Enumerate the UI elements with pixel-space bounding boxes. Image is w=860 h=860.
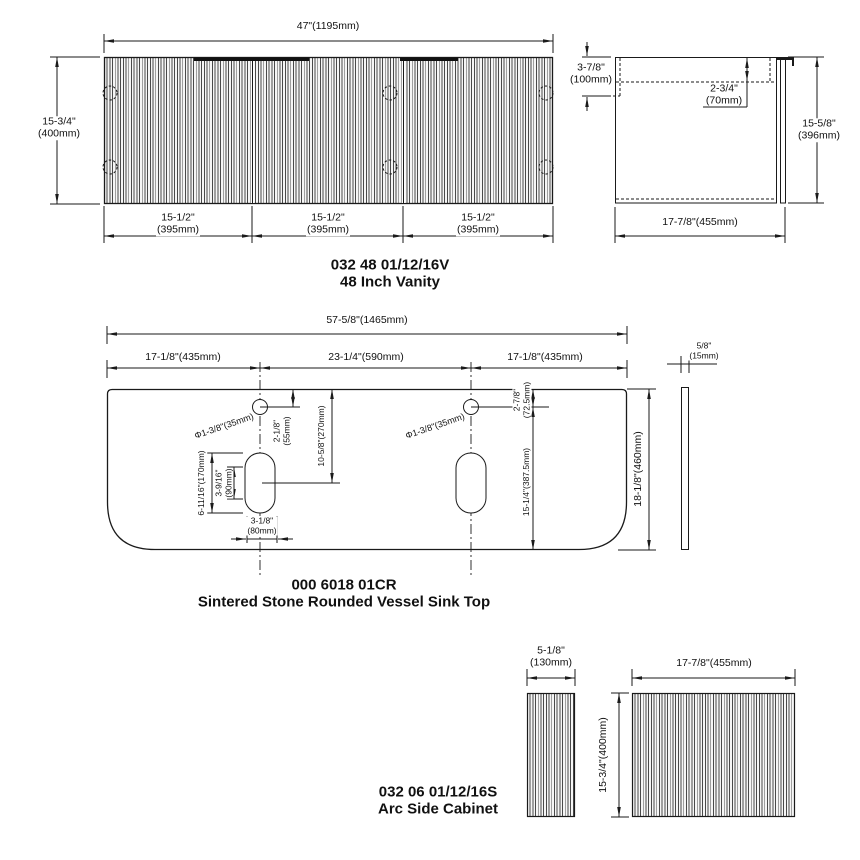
dim-door-3: 15-1/2" (395mm) bbox=[456, 212, 500, 236]
dim-hole-left-offset: 2-1/8" (55mm) bbox=[272, 415, 291, 446]
dim-side-top-height: 3-7/8" (100mm) bbox=[569, 62, 613, 86]
drain-cutout-left bbox=[245, 453, 275, 513]
dim-cabinet-depth: 5-1/8" (130mm) bbox=[529, 645, 573, 669]
sink-top-profile bbox=[682, 388, 689, 550]
dim-side-height: 15-5/8" (396mm) bbox=[797, 118, 841, 142]
sinktop-code: 000 6018 01CR bbox=[291, 577, 396, 594]
dim-top-to-drain: 10-5/8"(270mm) bbox=[317, 404, 327, 467]
drain-cutout-right bbox=[456, 453, 486, 513]
sinktop-name: Sintered Stone Rounded Vessel Sink Top bbox=[198, 594, 490, 611]
dim-cabinet-height: 15-3/4"(400mm) bbox=[598, 716, 610, 794]
vanity-name: 48 Inch Vanity bbox=[340, 274, 440, 291]
dim-faucet-hole-right: Φ1-3/8"(35mm) bbox=[403, 411, 467, 441]
dim-drain-length: 6-11/16"(170mm) bbox=[197, 449, 207, 516]
centerlines bbox=[260, 362, 471, 578]
side-cabinet-side-texture bbox=[632, 693, 795, 817]
dim-drain-inner: 3-9/16" (90mm) bbox=[214, 467, 233, 498]
side-cabinet-name: Arc Side Cabinet bbox=[378, 801, 498, 818]
dim-side-top-inset: 2-3/4" (70mm) bbox=[705, 83, 743, 107]
vanity-front-texture bbox=[104, 57, 553, 204]
dim-sinktop-center-span: 23-1/4"(590mm) bbox=[327, 352, 405, 364]
dim-sinktop-thickness: 5/8" (15mm) bbox=[688, 341, 719, 360]
side-cabinet-code: 032 06 01/12/16S bbox=[379, 784, 497, 801]
dim-cabinet-width: 17-7/8"(455mm) bbox=[675, 658, 753, 670]
side-cabinet-front-texture bbox=[527, 693, 575, 817]
dim-sinktop-left-span: 17-1/8"(435mm) bbox=[144, 352, 222, 364]
dim-sinktop-right-span: 17-1/8"(435mm) bbox=[506, 352, 584, 364]
faucet-hole-right bbox=[464, 400, 479, 415]
spec-sheet: 47"(1195mm) 15-3/4" (400mm) 15-1/2" (395… bbox=[0, 0, 860, 860]
faucet-hole-left bbox=[253, 400, 268, 415]
dim-sinktop-depth: 18-1/8"(460mm) bbox=[633, 430, 645, 508]
dim-drain-width: 3-1/8" (80mm) bbox=[246, 516, 277, 535]
dim-door-2: 15-1/2" (395mm) bbox=[306, 212, 350, 236]
vanity-code: 032 48 01/12/16V bbox=[331, 257, 449, 274]
dim-hole-right-to-bottom: 15-1/4"(387.5mm) bbox=[522, 447, 532, 517]
dim-side-depth: 17-7/8"(455mm) bbox=[661, 217, 739, 229]
dim-faucet-hole-left: Φ1-3/8"(35mm) bbox=[192, 411, 256, 441]
dim-door-1: 15-1/2" (395mm) bbox=[156, 212, 200, 236]
dim-sinktop-width: 57-5/8"(1465mm) bbox=[325, 315, 408, 327]
dim-hole-right-offset: 2-7/8" (72.5mm) bbox=[512, 381, 531, 419]
dim-vanity-height: 15-3/4" (400mm) bbox=[37, 116, 81, 140]
dim-vanity-width: 47"(1195mm) bbox=[296, 21, 360, 33]
